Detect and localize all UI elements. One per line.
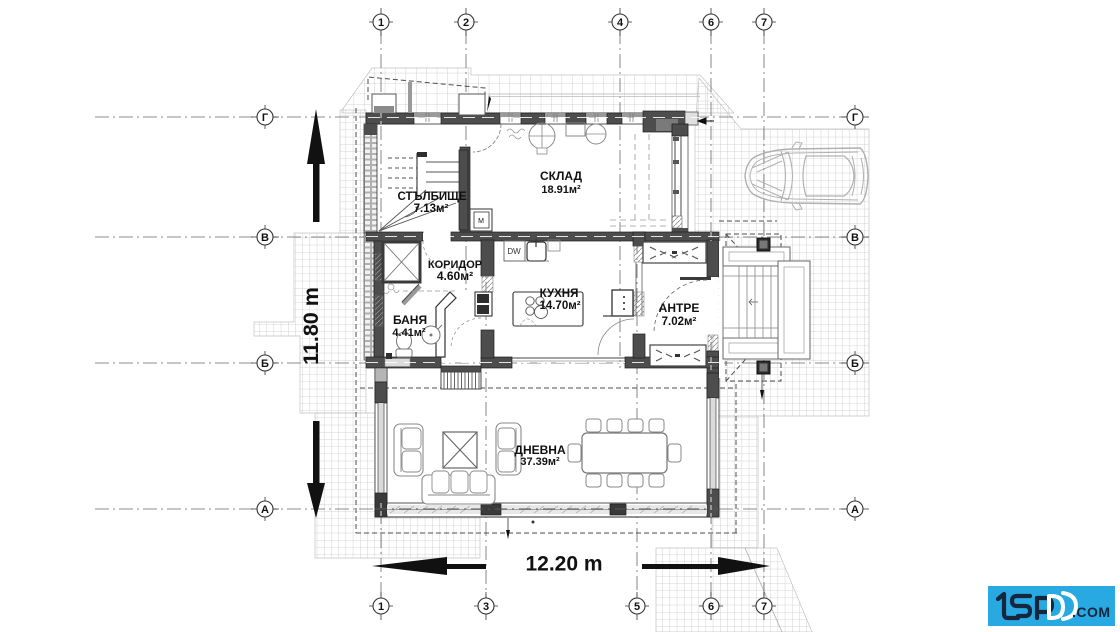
svg-text:СТЪЛБИЩЕ: СТЪЛБИЩЕ [397, 191, 466, 203]
svg-text:18.91м²: 18.91м² [541, 184, 581, 196]
svg-text:12.20 m: 12.20 m [525, 553, 602, 576]
svg-text:7: 7 [761, 601, 767, 613]
svg-text:11.80 m: 11.80 m [299, 287, 323, 365]
svg-text:3: 3 [483, 601, 489, 613]
svg-text:2: 2 [463, 17, 469, 29]
svg-text:1: 1 [378, 601, 384, 613]
svg-text:6: 6 [708, 17, 714, 29]
svg-text:7.02м²: 7.02м² [662, 316, 697, 328]
svg-text:БАНЯ: БАНЯ [393, 313, 427, 327]
svg-text:В: В [851, 232, 859, 244]
svg-text:А: А [851, 504, 859, 516]
svg-text:6: 6 [708, 601, 714, 613]
svg-text:.COM: .COM [1072, 604, 1111, 620]
svg-text:7.13м²: 7.13м² [414, 203, 449, 215]
svg-text:DW: DW [507, 247, 521, 256]
svg-text:Б: Б [261, 358, 269, 370]
svg-text:Г: Г [262, 112, 269, 124]
svg-text:В: В [261, 232, 269, 244]
svg-text:7: 7 [761, 17, 767, 29]
svg-text:14.70м²: 14.70м² [539, 300, 580, 312]
svg-text:ДНЕВНА: ДНЕВНА [514, 443, 566, 457]
svg-text:1: 1 [378, 17, 384, 29]
svg-text:АНТРЕ: АНТРЕ [659, 301, 700, 315]
svg-text:4.60м²: 4.60м² [437, 269, 473, 283]
svg-text:M: M [478, 218, 484, 225]
svg-text:4: 4 [617, 17, 624, 29]
svg-text:37.39м²: 37.39м² [520, 456, 560, 468]
svg-text:4.41м²: 4.41м² [392, 327, 426, 339]
svg-text:Б: Б [851, 358, 859, 370]
svg-text:А: А [261, 504, 269, 516]
svg-text:Г: Г [852, 112, 859, 124]
svg-text:КУХНЯ: КУХНЯ [540, 288, 579, 300]
svg-text:5: 5 [634, 601, 640, 613]
svg-text:СКЛАД: СКЛАД [540, 169, 583, 183]
